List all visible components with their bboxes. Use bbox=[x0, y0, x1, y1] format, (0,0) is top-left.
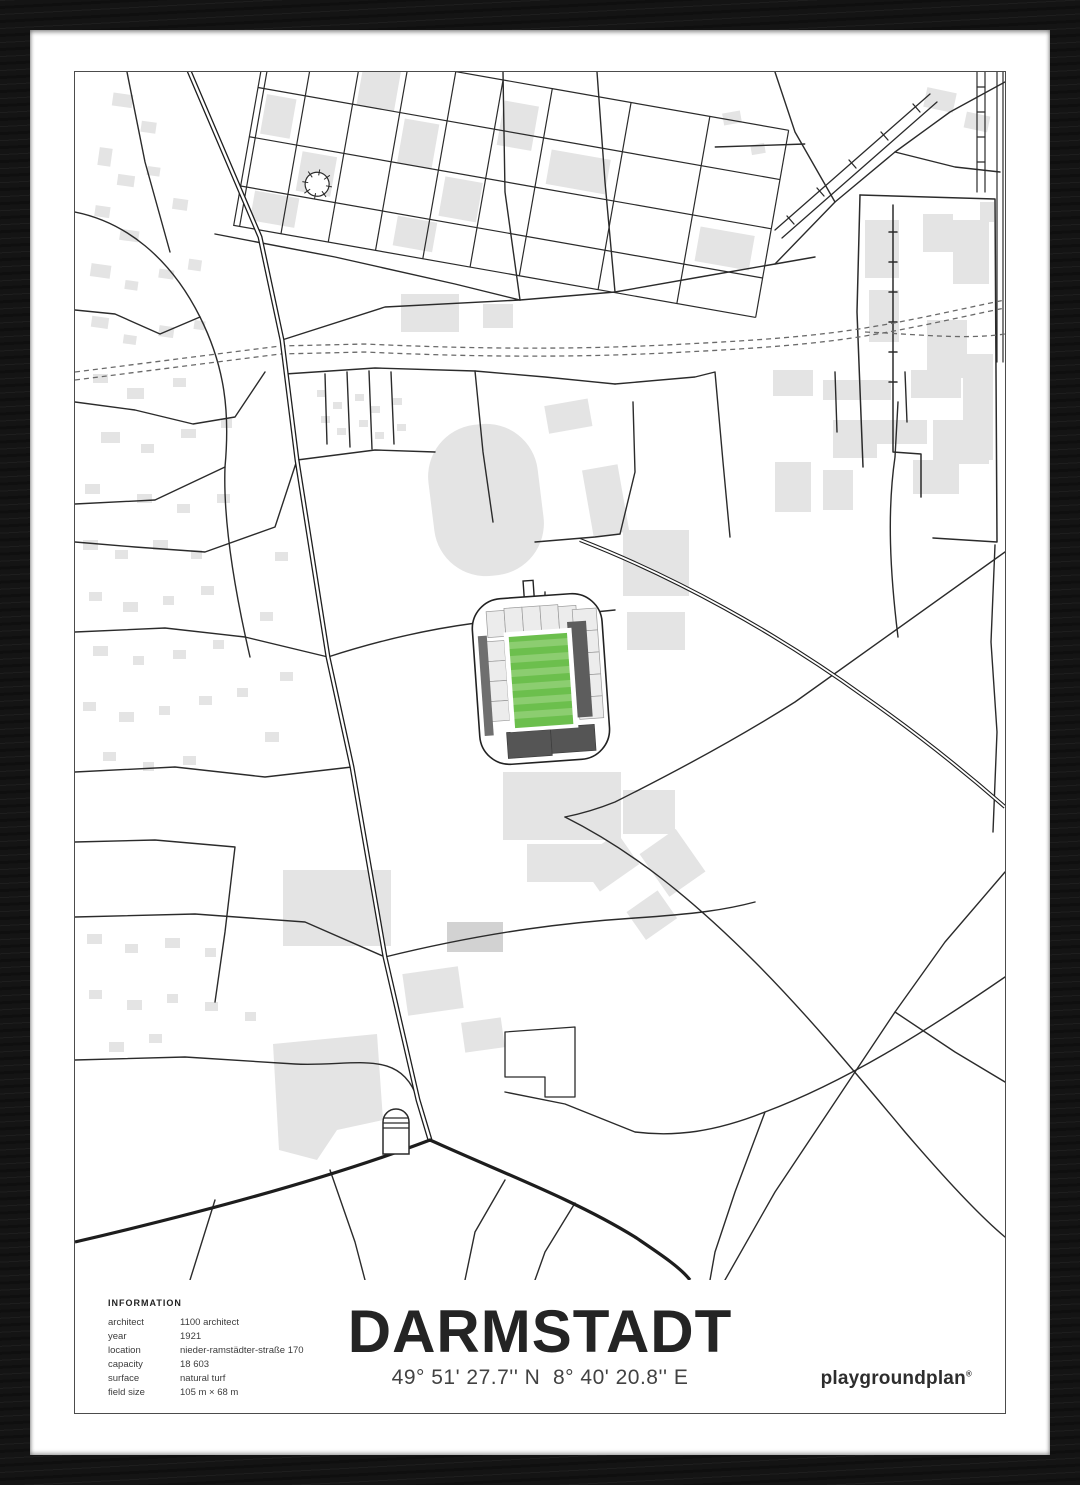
cemetery-grid bbox=[234, 72, 789, 317]
allee-path bbox=[775, 94, 937, 238]
map-area bbox=[75, 72, 1005, 1280]
city-map bbox=[75, 72, 1005, 1280]
heavy-road bbox=[75, 1140, 690, 1280]
registered-mark: ® bbox=[966, 1370, 972, 1379]
stadium bbox=[469, 576, 611, 767]
framed-poster: INFORMATION architect1100 architect year… bbox=[0, 0, 1080, 1485]
poster-title: DARMSTADT bbox=[75, 1302, 1005, 1362]
outlined-building bbox=[505, 1027, 575, 1097]
info-row-field-size: field size105 m × 68 m bbox=[108, 1388, 304, 1402]
dome-building bbox=[383, 1109, 409, 1154]
caption-area: INFORMATION architect1100 architect year… bbox=[75, 1280, 1005, 1413]
athletics-track bbox=[422, 418, 550, 582]
poster-paper: INFORMATION architect1100 architect year… bbox=[75, 72, 1005, 1413]
brand-logo: playgroundplan® bbox=[821, 1368, 972, 1390]
stadium-pitch bbox=[504, 628, 579, 732]
railway-line bbox=[75, 300, 1005, 380]
